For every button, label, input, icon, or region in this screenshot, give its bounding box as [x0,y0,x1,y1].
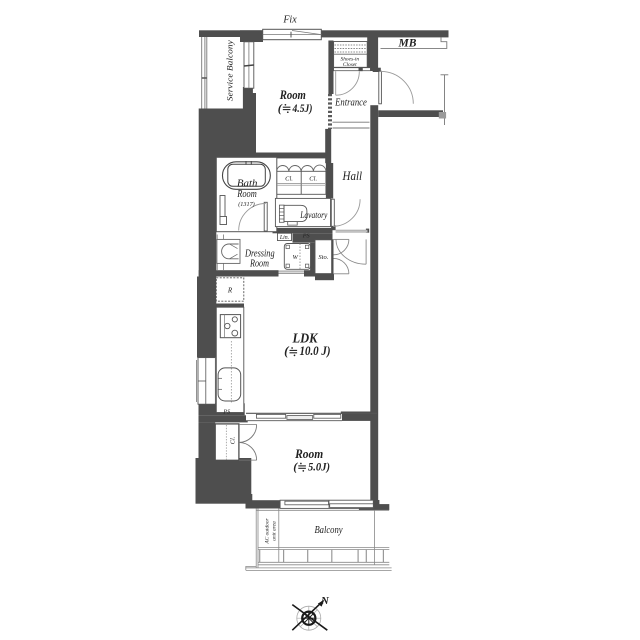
svg-text:Lavatory: Lavatory [299,211,328,221]
svg-text:Service Balcony: Service Balcony [225,40,235,101]
svg-text:N: N [320,595,330,607]
svg-text:Bath: Bath [237,179,258,190]
svg-text:Entrance: Entrance [334,98,367,109]
svg-text:Cl.: Cl. [230,436,237,444]
svg-text:Sto.: Sto. [318,254,328,261]
svg-text:Cl.: Cl. [285,176,293,183]
svg-text:unit area: unit area [271,521,277,541]
svg-text:Closet: Closet [343,62,357,68]
svg-text:Room: Room [236,189,257,200]
svg-text:Hall: Hall [342,169,363,183]
svg-text:PS: PS [302,233,310,240]
svg-text:Balcony: Balcony [314,525,343,536]
svg-text:(: ( [293,460,298,474]
svg-text:(: ( [278,101,283,115]
svg-text:Room: Room [249,258,269,270]
svg-text:Lin.: Lin. [279,235,289,241]
svg-text:10.0 J): 10.0 J) [300,343,331,358]
svg-text:W: W [292,254,298,261]
svg-text:Fix: Fix [282,15,297,26]
svg-text:5.0J): 5.0J) [308,460,330,474]
svg-text:AC outdoor: AC outdoor [264,517,270,544]
svg-text:R: R [227,287,233,295]
svg-text:PS: PS [222,409,230,416]
svg-text:(1317): (1317) [238,201,255,208]
svg-text:Cl.: Cl. [309,176,317,183]
svg-text:4.5J): 4.5J) [292,101,313,115]
svg-text:MB: MB [397,37,416,49]
svg-text:(: ( [284,343,290,358]
